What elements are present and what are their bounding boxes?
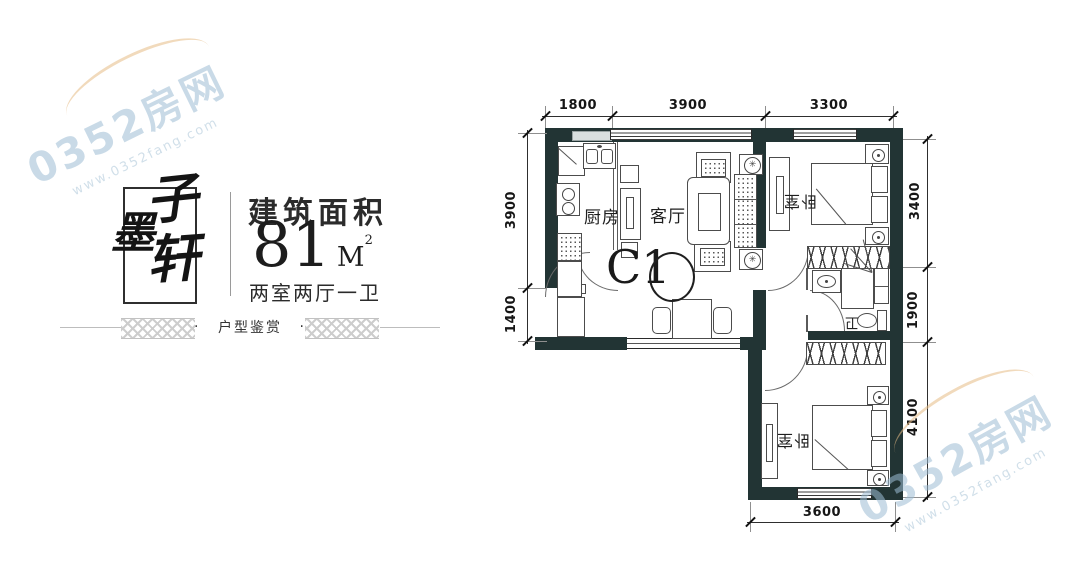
bed-bottom: [812, 405, 873, 470]
bath-shelf: [874, 268, 889, 304]
bath-door-arc: [810, 290, 845, 331]
floorplan-page: 0352房网 www.0352fang.com 0352房网 www.0352f…: [0, 0, 1080, 577]
rooms-summary: 两室两厅一卫: [249, 277, 381, 306]
sink-basin-left: [586, 149, 598, 164]
panel-divider: [230, 192, 231, 296]
tv-cabinet-top: [620, 165, 639, 183]
pillow: [871, 410, 887, 437]
nightstand: [865, 227, 889, 245]
pillow: [871, 166, 888, 193]
tv-cabinet: [620, 188, 641, 240]
armchair-cushion: [700, 248, 725, 266]
dim-label: 3600: [792, 505, 852, 519]
room-label-kitchen: 厨房: [584, 203, 620, 228]
fridge-diagonal: [558, 148, 577, 165]
bed-top: [811, 163, 873, 225]
window-living: [610, 129, 752, 140]
lamp-icon: [872, 149, 885, 162]
dining-chair-left: [652, 307, 671, 334]
kitchen-counter: [557, 261, 582, 297]
dim-line-top: [542, 116, 897, 117]
dining-table: [672, 299, 712, 339]
window-bedroom-top: [793, 129, 857, 140]
room-label-bedroom-bottom: 卧室: [776, 430, 810, 454]
dim-line-bottom: [747, 522, 899, 523]
watermark-site-name: 0352房网: [15, 37, 257, 196]
dim-line-right: [927, 136, 928, 500]
dim-ext: [518, 341, 547, 342]
sofa-seam: [735, 199, 756, 200]
armchair-cushion: [701, 159, 726, 177]
nightstand: [867, 386, 889, 405]
stove-burner-icon: [562, 188, 575, 201]
dim-label: 3400: [908, 171, 922, 231]
tv-screen: [626, 197, 634, 229]
dim-ext: [750, 502, 751, 532]
plant-icon: ✳: [744, 157, 761, 174]
washbasin: [812, 270, 841, 293]
banner-dot-left: ·: [194, 319, 200, 335]
kitchen-sink: [583, 143, 616, 169]
lamp-icon: [873, 391, 886, 404]
room-label-bath: 卫: [844, 313, 859, 333]
window-dining: [627, 338, 740, 349]
stove-burner-icon: [562, 202, 575, 215]
side-table-bottom: ✳: [739, 249, 763, 270]
wall-hall-divider: [753, 290, 766, 350]
sink-faucet: [597, 145, 602, 148]
nightstand: [867, 470, 889, 486]
basin-drain: [825, 280, 828, 283]
dim-label: 1400: [504, 284, 518, 344]
dim-ext: [903, 267, 936, 268]
area-unit: M: [337, 242, 365, 273]
toilet: [857, 313, 877, 328]
coffee-table-top: [698, 193, 721, 231]
kitchen-counter-corner: [557, 297, 585, 337]
dim-label: 1900: [906, 280, 920, 340]
window-dining-mullion: [627, 343, 740, 344]
dim-line-left: [527, 130, 528, 344]
partition-bath-lower: [806, 315, 808, 332]
wall-bedroom-bottom-left: [748, 337, 762, 500]
lamp-icon: [872, 231, 885, 244]
sofa: [734, 174, 757, 248]
banner-line-left: [60, 327, 122, 328]
lamp-icon: [873, 473, 886, 486]
window-bedroom-bottom: [797, 488, 872, 499]
plant-icon: ✳: [744, 252, 761, 269]
shower: [841, 268, 874, 309]
dim-ext: [895, 502, 896, 532]
sink-basin-right: [601, 149, 613, 164]
banner-ornament-right: [305, 318, 379, 339]
bed-fold-line: [816, 189, 846, 225]
wardrobe-bottom-bedroom: [806, 342, 886, 365]
kitchen-counter-grate: [557, 233, 582, 261]
dim-label: 3900: [658, 98, 718, 112]
dim-ext: [903, 342, 936, 343]
room-label-living: 客厅: [650, 202, 686, 227]
watermark-top-left: 0352房网 www.0352fang.com: [3, 11, 266, 212]
dim-ext: [903, 497, 936, 498]
brand-char-3: 轩: [145, 232, 201, 288]
sofa-seam: [735, 224, 756, 225]
watermark-site-url: www.0352fang.com: [902, 421, 1080, 536]
pillow: [871, 440, 887, 467]
toilet-tank: [877, 310, 887, 331]
area-exponent: 2: [365, 233, 373, 248]
dim-label: 3300: [799, 98, 859, 112]
banner-ornament-left: [121, 318, 195, 339]
watermark-roof-swoosh-icon: [882, 352, 1036, 457]
fridge: [558, 146, 585, 176]
unit-type-ellipse: [649, 252, 695, 302]
dim-ext: [903, 139, 936, 140]
dining-chair-right: [713, 307, 732, 334]
wall-entry-bottom: [535, 337, 627, 350]
bedroom-bottom-door-arc: [765, 348, 808, 391]
stove: [556, 183, 580, 216]
side-table-top: ✳: [739, 154, 763, 175]
wall-right: [890, 128, 903, 500]
area-value: 81M2: [252, 214, 373, 276]
room-label-bedroom-top: 卧室: [783, 191, 817, 215]
dim-label: 4100: [906, 387, 920, 447]
bedroom-top-door-arc: [768, 248, 809, 291]
dim-ext: [518, 133, 547, 134]
banner-title-row: · 户型鉴赏 ·: [194, 317, 306, 337]
window-kitchen: [572, 131, 612, 141]
pillow: [871, 196, 888, 223]
dim-label: 1800: [548, 98, 608, 112]
dim-label: 3900: [504, 180, 518, 240]
banner-title: 户型鉴赏: [218, 317, 282, 337]
bath-shelf-divider: [875, 286, 888, 287]
partition-bath-upper: [806, 268, 808, 290]
bed-fold-line: [814, 439, 848, 470]
dim-ext: [518, 288, 547, 289]
area-number: 81: [252, 208, 331, 281]
coffee-table: [687, 177, 730, 245]
watermark-roof-swoosh-icon: [55, 21, 211, 120]
banner-line-right: [380, 327, 440, 328]
nightstand: [865, 144, 889, 164]
armchair-bottom: [694, 241, 731, 272]
dresser-panel: [766, 424, 773, 462]
